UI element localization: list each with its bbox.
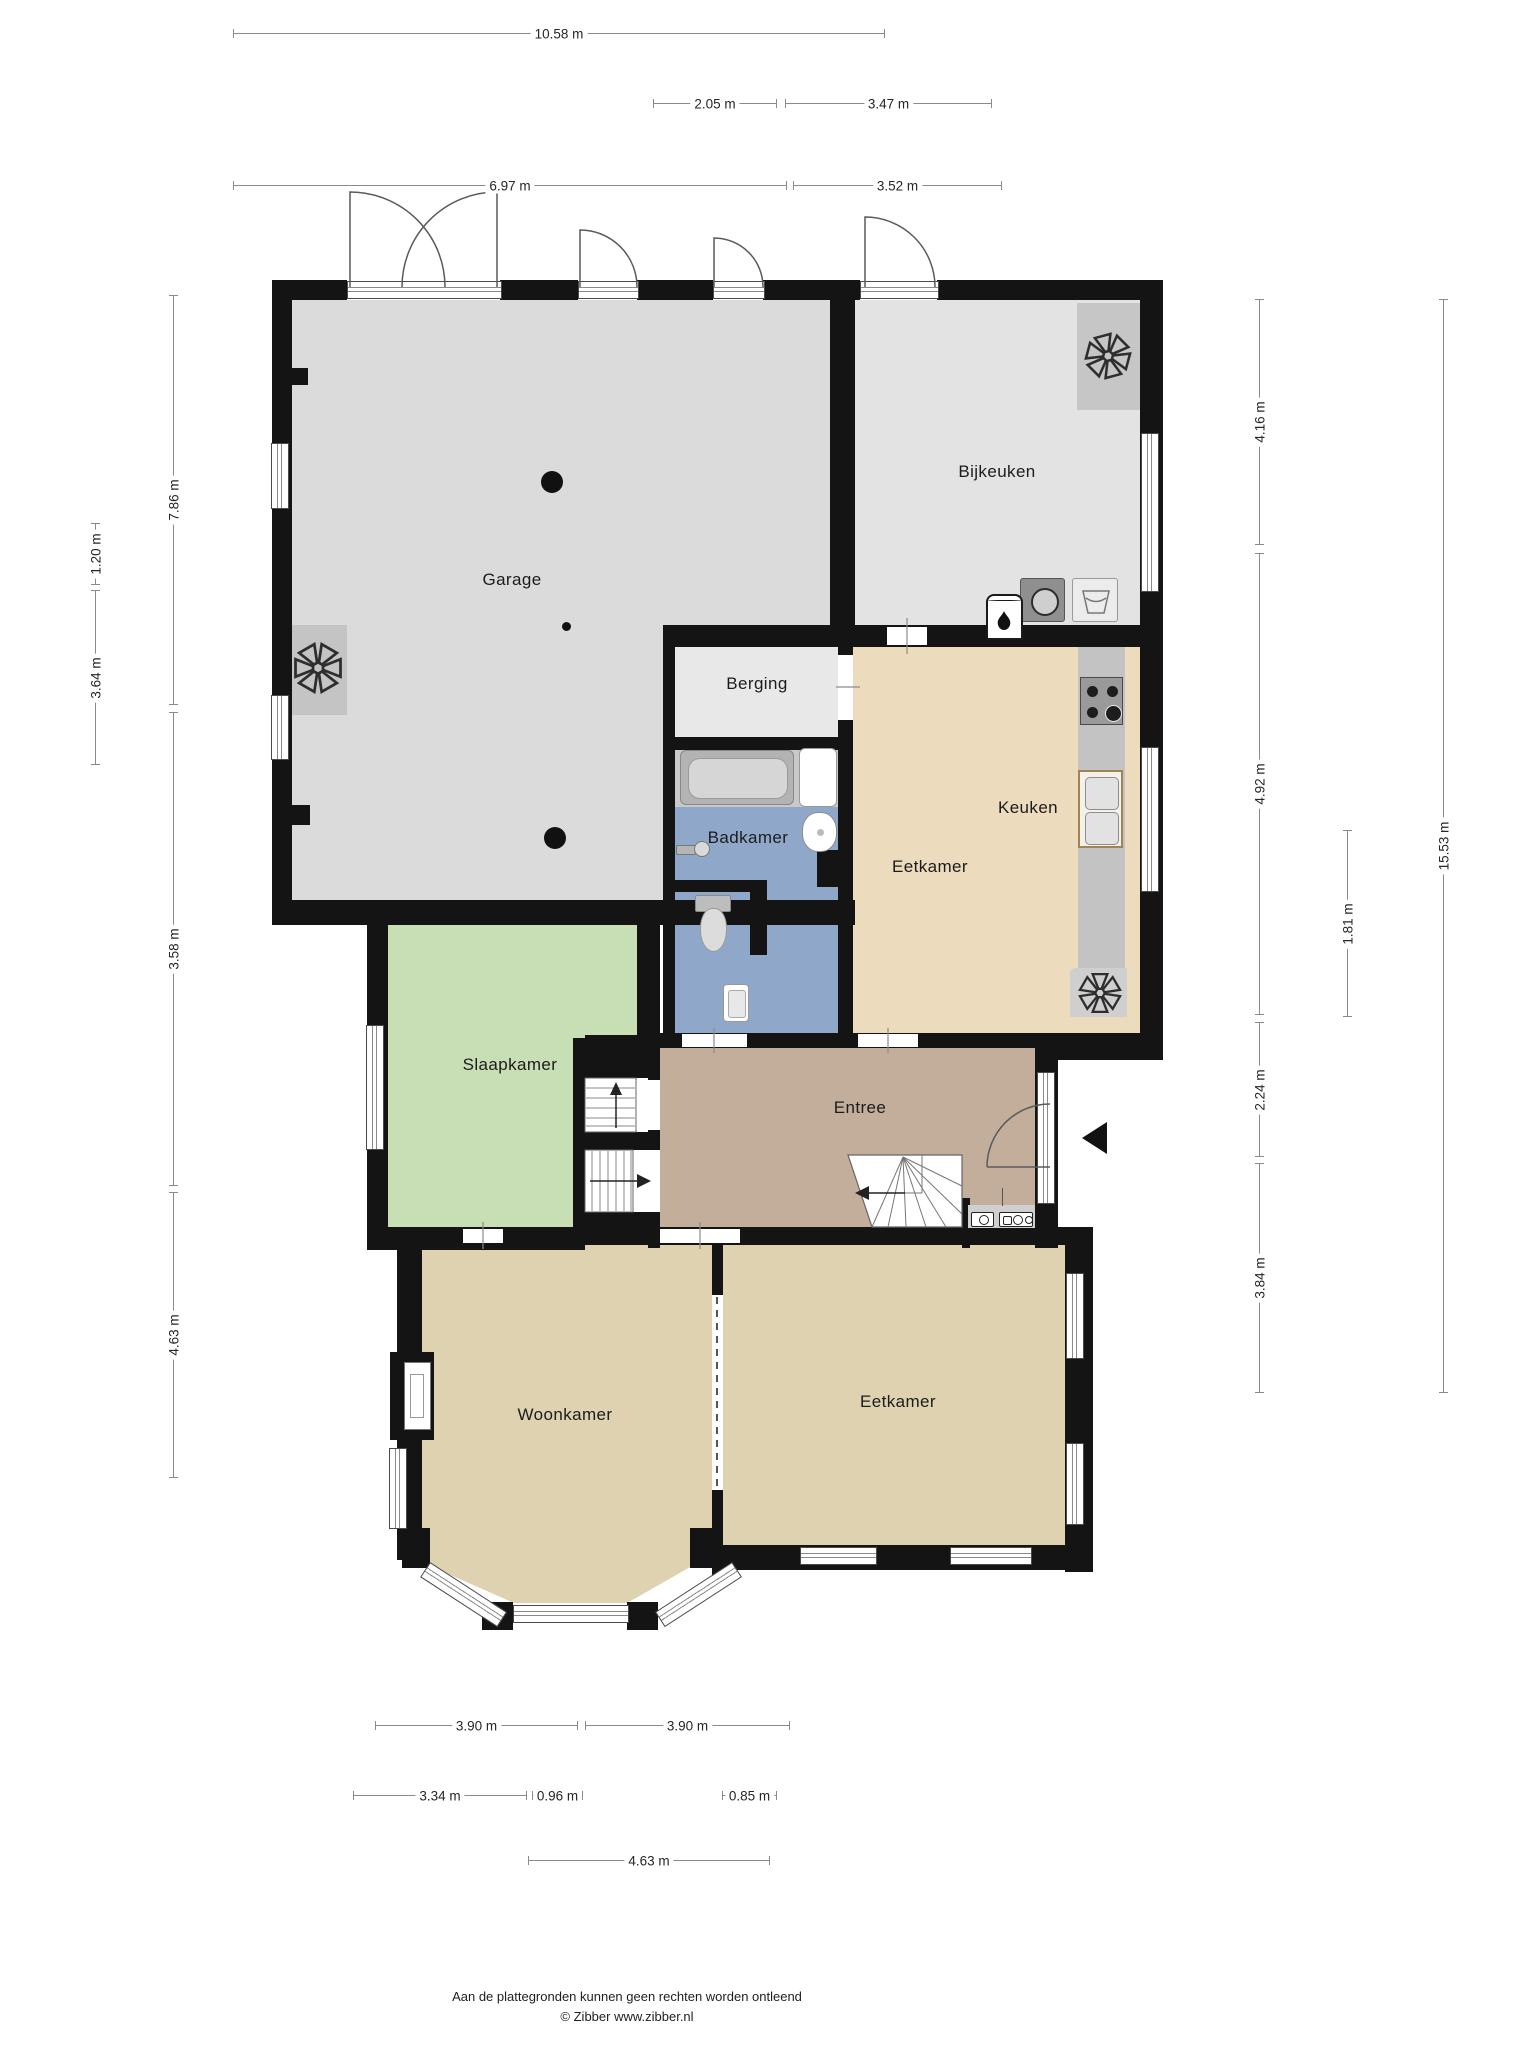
wall xyxy=(830,300,855,647)
front-door-opening xyxy=(1037,1072,1055,1204)
wall xyxy=(723,1545,1093,1570)
doorway xyxy=(682,1034,747,1047)
dim-top-b: 3.47 m xyxy=(785,103,992,104)
burner xyxy=(1107,686,1118,697)
room-label-slaapkamer: Slaapkamer xyxy=(463,1055,558,1075)
bathtub-inner xyxy=(688,758,788,799)
dim-bottom-e: 0.85 m xyxy=(722,1795,777,1796)
room-label-eetkamer-boven: Eetkamer xyxy=(892,857,968,877)
garage-double-door-arc xyxy=(350,192,497,287)
boiler-heater xyxy=(986,594,1023,640)
meter-dial xyxy=(1003,1216,1012,1225)
wall xyxy=(500,280,578,300)
window xyxy=(1066,1443,1084,1525)
wall xyxy=(1058,1033,1163,1060)
small-sink-inner xyxy=(728,990,746,1018)
dim-top-a: 2.05 m xyxy=(653,103,777,104)
dim-top-d: 3.52 m xyxy=(793,185,1002,186)
wall xyxy=(648,1130,660,1150)
kitchen-ventilation-unit xyxy=(1070,968,1127,1017)
dim-top-total: 10.58 m xyxy=(233,33,885,34)
doorway xyxy=(858,1034,918,1047)
doorway xyxy=(463,1229,503,1243)
entree-floor xyxy=(660,1048,1035,1227)
fireplace-inner xyxy=(410,1374,424,1418)
dim-left-c: 3.64 m xyxy=(95,590,96,765)
toilet-bowl xyxy=(700,908,727,952)
dim-left-a: 7.86 m xyxy=(173,295,174,705)
dim-left-e: 4.63 m xyxy=(173,1192,174,1478)
shower-tray xyxy=(799,748,837,807)
dim-right-e: 3.84 m xyxy=(1259,1163,1260,1393)
wall xyxy=(402,1528,430,1568)
garage-side-door-sill xyxy=(713,281,765,299)
wall-stub xyxy=(292,805,310,825)
garage-door-sill xyxy=(578,281,639,299)
dim-bottom-c: 3.34 m xyxy=(353,1795,527,1796)
dryer xyxy=(1072,578,1118,622)
kitchen-sink xyxy=(1078,770,1123,848)
dim-left-b: 1.20 m xyxy=(95,523,96,585)
wall xyxy=(1140,280,1163,1060)
window xyxy=(950,1547,1032,1565)
dim-right-d: 2.24 m xyxy=(1259,1022,1260,1157)
dim-top-c: 6.97 m xyxy=(233,185,787,186)
sink-basin xyxy=(1085,777,1119,810)
gas-meter-icon xyxy=(971,1212,994,1227)
meter-dial xyxy=(979,1215,989,1225)
dim-right-a: 4.16 m xyxy=(1259,299,1260,545)
wall xyxy=(817,850,838,887)
room-label-berging: Berging xyxy=(726,674,787,694)
stair-opening xyxy=(633,1150,660,1212)
dryer-basket-icon xyxy=(1073,579,1119,623)
wall xyxy=(663,625,675,750)
wall xyxy=(272,280,292,925)
wall xyxy=(937,280,1163,300)
window xyxy=(271,443,289,509)
column-dot-small xyxy=(562,622,571,631)
wall xyxy=(663,750,675,1035)
footer-disclaimer: Aan de plattegronden kunnen geen rechten… xyxy=(0,1989,1254,2004)
bijkeuken-counter xyxy=(1077,303,1140,410)
garage-floor xyxy=(292,300,830,625)
bath-faucet xyxy=(676,845,696,855)
electric-meter-icon xyxy=(999,1212,1033,1227)
room-label-eetkamer-beneden: Eetkamer xyxy=(860,1392,936,1412)
dim-right-b: 4.92 m xyxy=(1259,553,1260,1015)
floorplan-page: Garage Bijkeuken Berging Badkamer Keuken… xyxy=(0,0,1536,2048)
entrance-arrow-icon xyxy=(1082,1122,1107,1154)
wall xyxy=(637,900,660,1038)
burner xyxy=(1087,686,1098,697)
wall xyxy=(585,1035,648,1078)
doorway xyxy=(660,1229,740,1243)
dim-right-total: 15.53 m xyxy=(1443,299,1444,1393)
washing-machine-drum xyxy=(1031,588,1059,616)
window xyxy=(271,695,289,760)
column-dot xyxy=(544,827,566,849)
garage-door-arc xyxy=(580,230,637,287)
window xyxy=(1066,1273,1084,1359)
bay-window xyxy=(513,1605,629,1623)
wall xyxy=(585,1132,648,1150)
footer-copyright: © Zibber www.zibber.nl xyxy=(0,2009,1254,2024)
bijkeuken-door-sill xyxy=(860,281,939,299)
garage-double-door-sill xyxy=(347,281,502,299)
garage-side-door-arc xyxy=(714,238,763,287)
room-label-entree: Entree xyxy=(834,1098,887,1118)
small-sink xyxy=(723,984,749,1022)
room-label-bijkeuken: Bijkeuken xyxy=(958,462,1035,482)
wall xyxy=(637,280,713,300)
window xyxy=(1141,433,1159,592)
wall xyxy=(272,900,855,925)
doorway xyxy=(887,627,927,645)
wall xyxy=(763,280,860,300)
washing-machine xyxy=(1020,578,1065,622)
window xyxy=(389,1448,407,1529)
room-label-badkamer: Badkamer xyxy=(708,828,789,848)
dim-bottom-b: 3.90 m xyxy=(585,1725,790,1726)
boiler-top-line xyxy=(988,600,1021,601)
dim-bottom-f: 4.63 m xyxy=(528,1860,770,1861)
stove xyxy=(1080,677,1123,725)
window xyxy=(800,1547,877,1565)
door-reference-tick xyxy=(1002,1188,1003,1206)
meter-dial xyxy=(1013,1215,1023,1225)
woonkamer-floor xyxy=(422,1243,712,1550)
wall xyxy=(690,1528,722,1568)
stair-opening xyxy=(636,1080,660,1130)
washbasin xyxy=(802,812,837,852)
room-label-keuken: Keuken xyxy=(998,798,1058,818)
doorway xyxy=(838,655,853,720)
meter-dial xyxy=(1025,1216,1033,1224)
bijkeuken-door-arc xyxy=(865,217,935,287)
room-label-woonkamer: Woonkamer xyxy=(518,1405,613,1425)
garage-ventilation-unit xyxy=(290,625,347,715)
window xyxy=(1141,747,1159,892)
bathtub xyxy=(680,750,794,805)
wall xyxy=(648,1035,660,1080)
dim-bottom-a: 3.90 m xyxy=(375,1725,578,1726)
wall-stub xyxy=(292,368,308,385)
washbasin-drain xyxy=(817,829,824,836)
burner xyxy=(1087,707,1098,718)
wall xyxy=(627,1602,658,1630)
burner xyxy=(1105,705,1122,722)
wall xyxy=(573,1038,585,1230)
room-label-garage: Garage xyxy=(482,570,541,590)
dim-right-c: 1.81 m xyxy=(1347,830,1348,1017)
dim-bottom-d: 0.96 m xyxy=(532,1795,583,1796)
garage-floor xyxy=(292,620,663,900)
dim-left-d: 3.58 m xyxy=(173,712,174,1186)
ensuite-opening xyxy=(713,1295,722,1490)
window xyxy=(366,1025,384,1150)
column-dot xyxy=(541,471,563,493)
sink-basin xyxy=(1085,812,1119,845)
